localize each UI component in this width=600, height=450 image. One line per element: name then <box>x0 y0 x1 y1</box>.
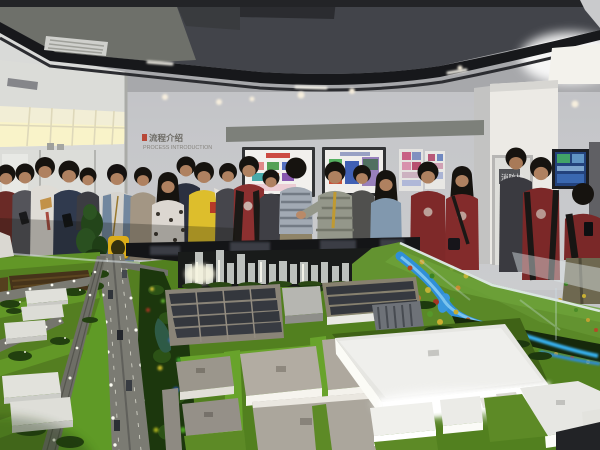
svg-text:流程介绍: 流程介绍 <box>149 133 184 143</box>
svg-text:PROCESS INTRODUCTION: PROCESS INTRODUCTION <box>143 145 212 151</box>
